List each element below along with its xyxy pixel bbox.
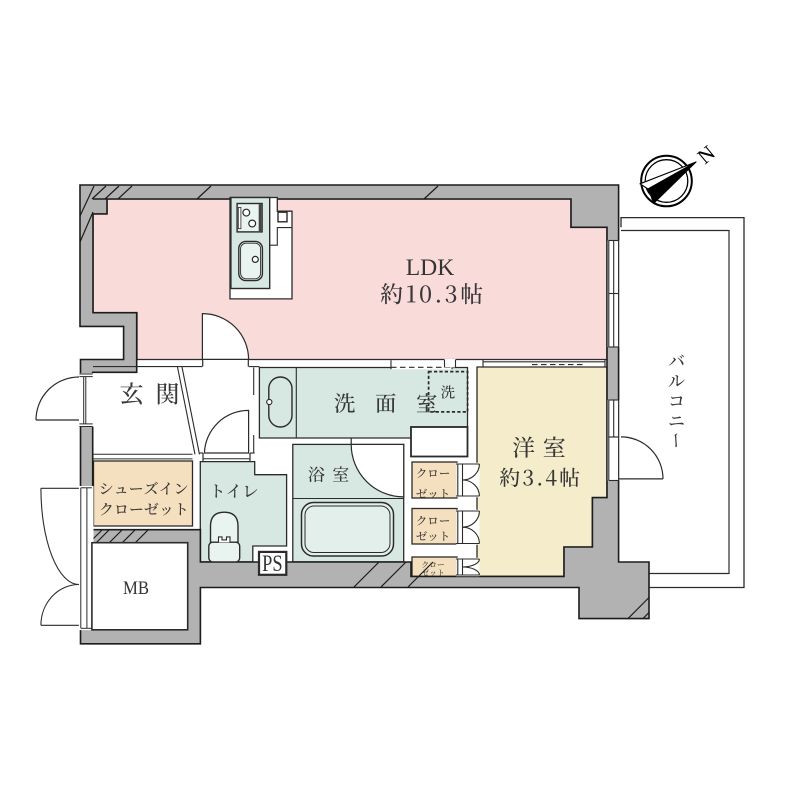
svg-text:PS: PS [262, 550, 282, 577]
svg-text:LDK: LDK [406, 255, 455, 281]
svg-text:MB: MB [123, 579, 149, 599]
